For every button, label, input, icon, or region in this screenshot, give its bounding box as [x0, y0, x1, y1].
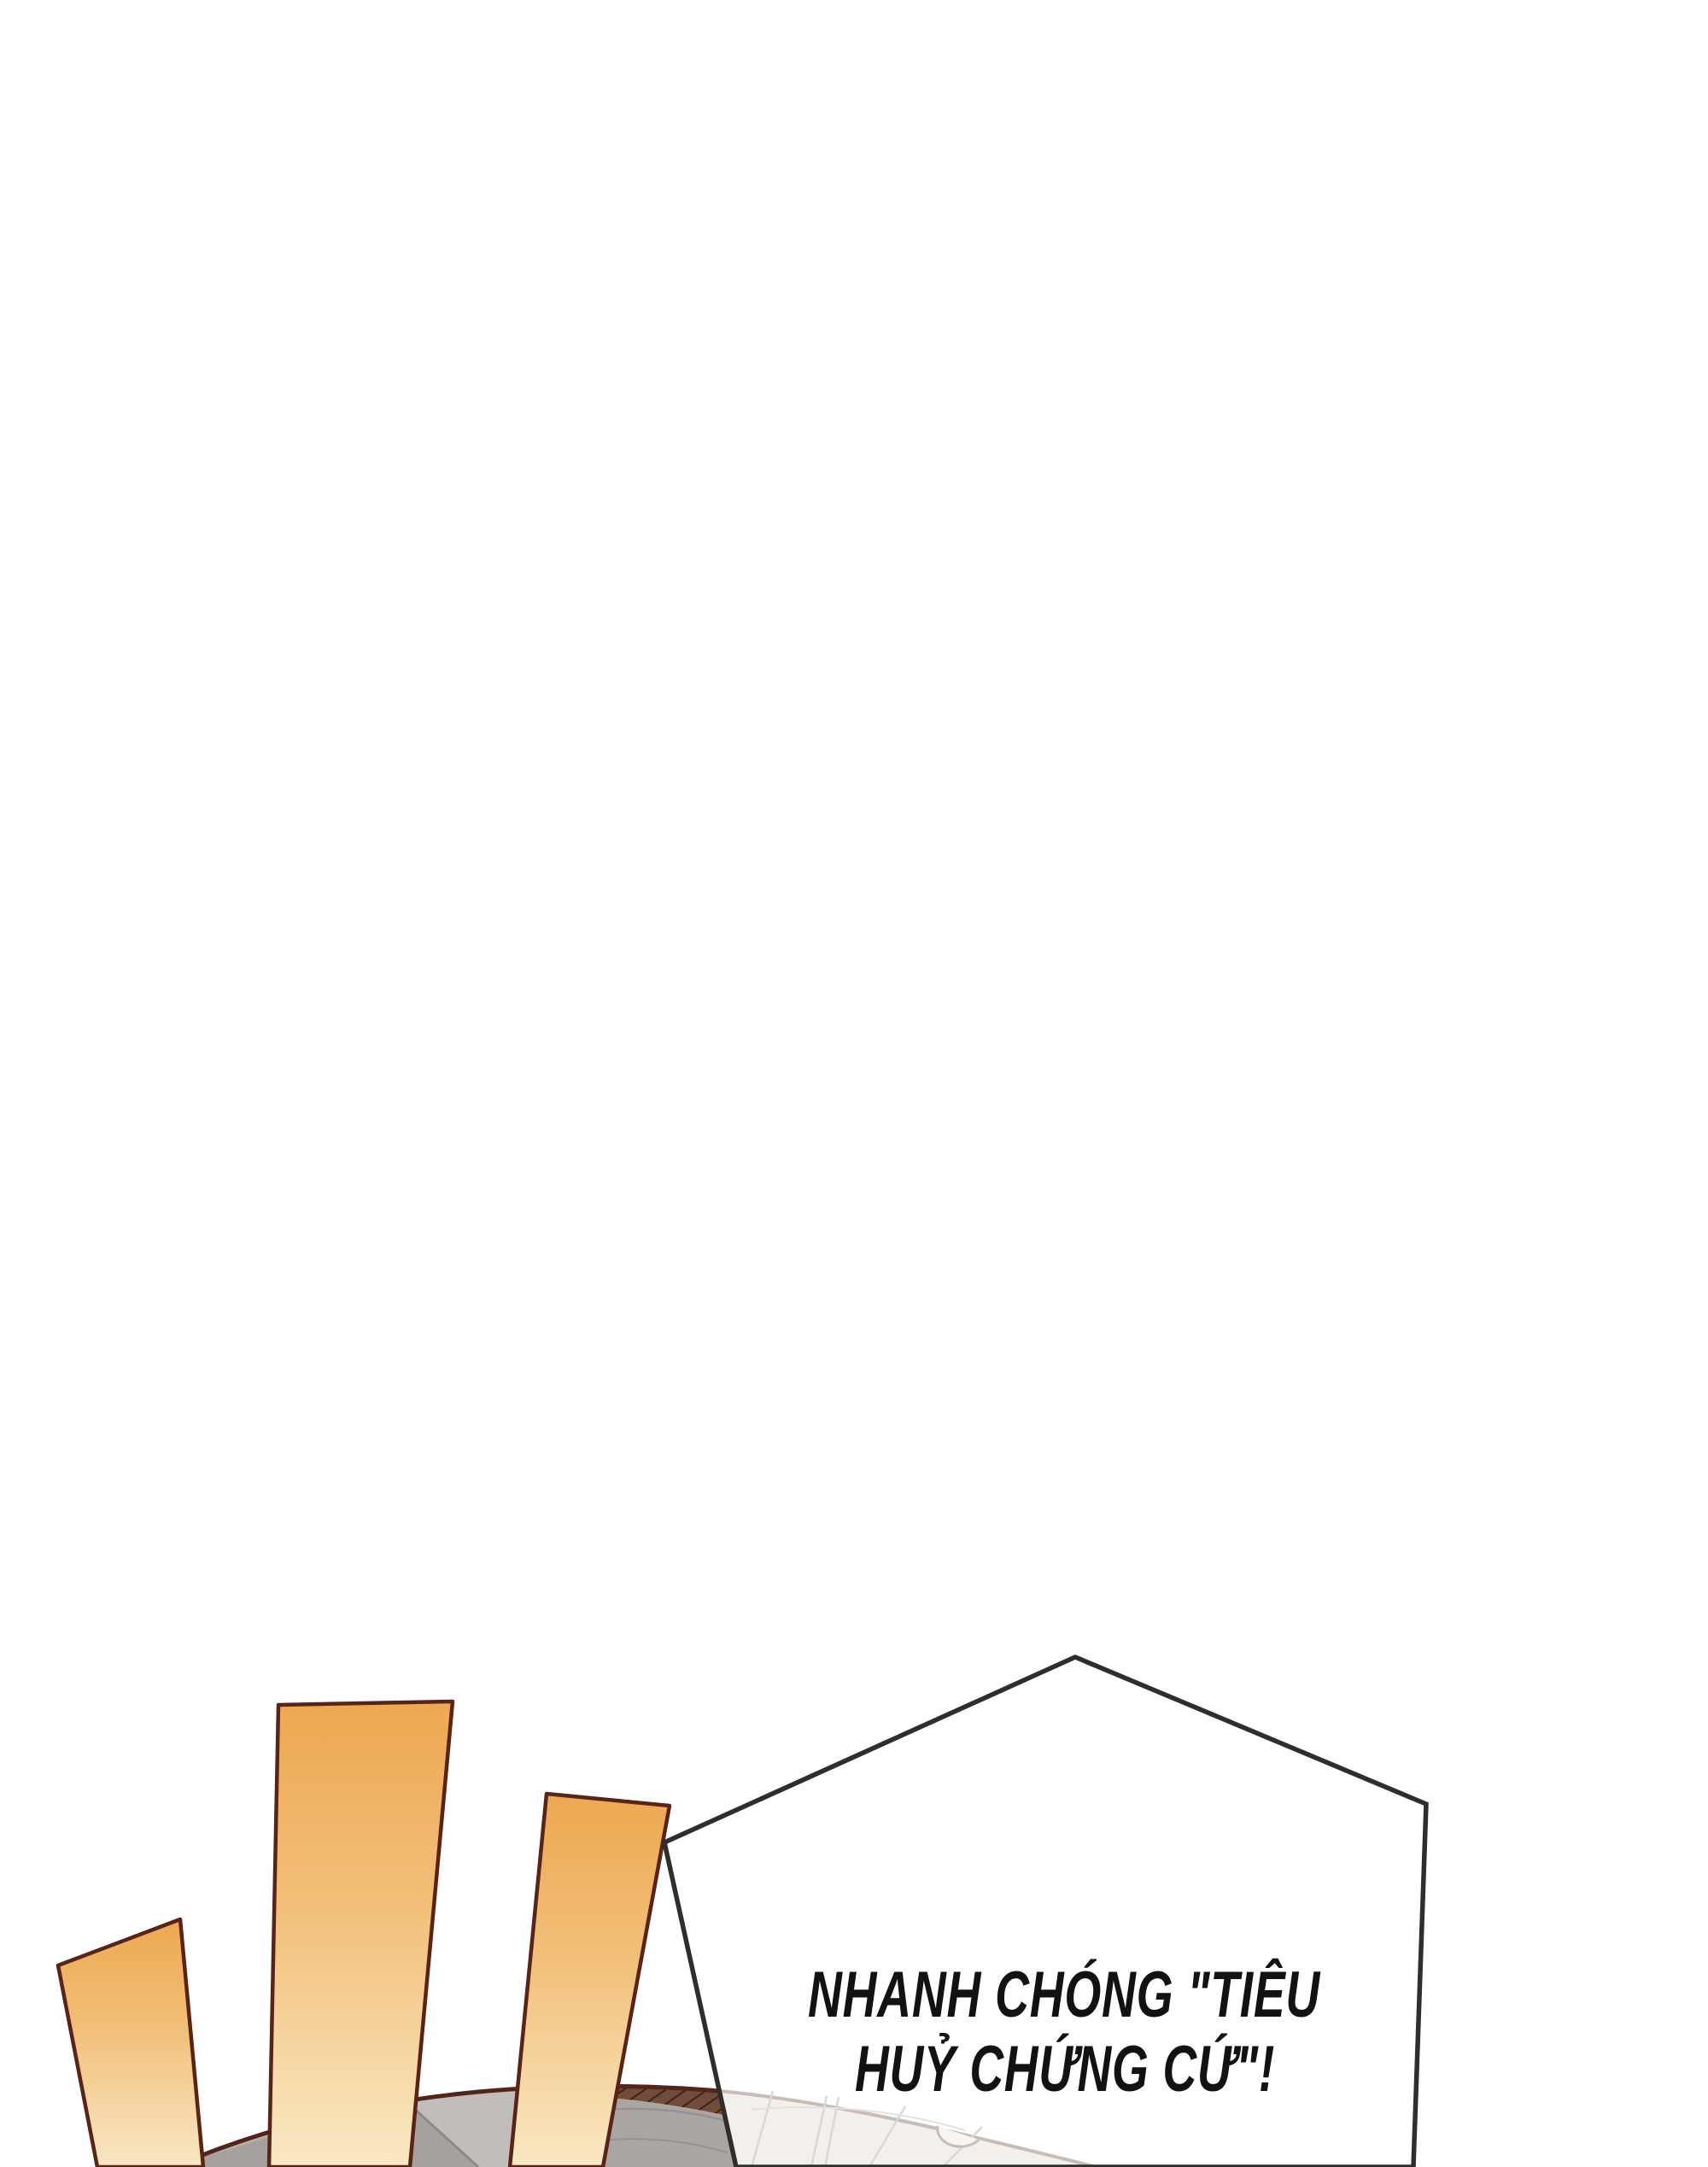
panel-canvas: NHANH CHÓNG "TIÊU HUỶ CHỨNG CỨ"!: [0, 0, 1708, 2167]
speech-bubble-text-line1: NHANH CHÓNG "TIÊU: [808, 1958, 1321, 2031]
speech-bubble-text-line2: HUỶ CHỨNG CỨ"!: [855, 2033, 1275, 2106]
comic-panel: NHANH CHÓNG "TIÊU HUỶ CHỨNG CỨ"!: [0, 0, 1708, 2167]
